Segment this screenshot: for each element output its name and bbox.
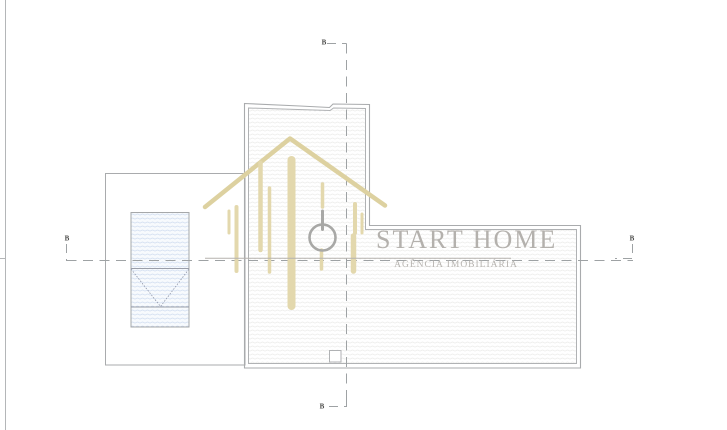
pool [131,213,189,328]
sheet-border [0,0,6,430]
section-label-bottom: B [320,403,325,410]
pool-basin [131,213,189,328]
section-label-left: B [65,236,70,243]
section-label-right: B [630,236,635,243]
section-label-top: B [322,39,327,46]
watermark-subtitle: AGÊNCIA IMOBILIÁRIA [394,261,518,271]
roof-access-detail [330,351,342,363]
plan-drawing-svg [0,0,727,430]
watermark-title: START HOME [376,227,557,253]
floor-plan-drawing: START HOME AGÊNCIA IMOBILIÁRIA B B B B [0,0,727,430]
